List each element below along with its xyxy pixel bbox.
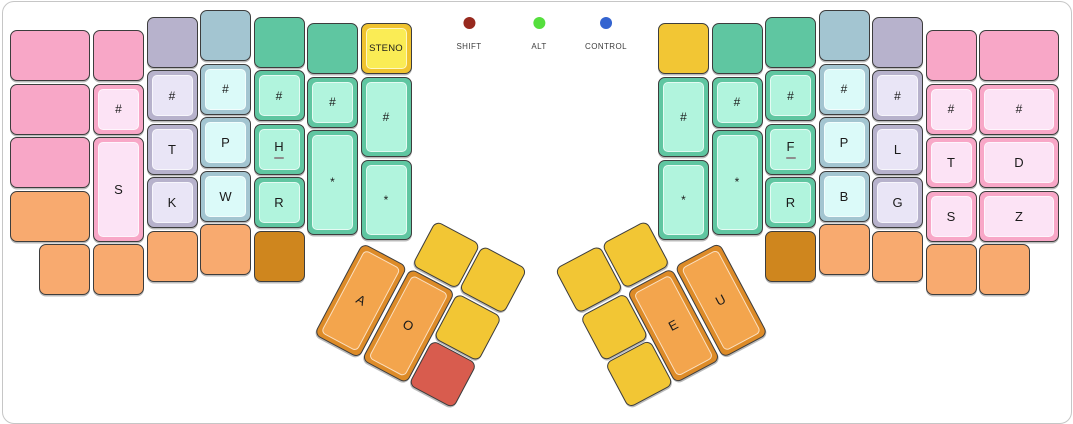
- key-l1-row3[interactable]: [10, 137, 90, 188]
- key-r3-hash[interactable]: #: [765, 70, 816, 121]
- keycap-inner: #: [717, 82, 758, 123]
- key-r4-bottom[interactable]: [819, 224, 870, 275]
- keyboard-board: AO EU #S#TK#PW#HR#*STENO#*#*#*#FR#PB#LG#…: [0, 0, 1073, 424]
- key-star-left-outer[interactable]: *: [307, 130, 358, 235]
- key-l1-row2[interactable]: [10, 84, 90, 135]
- key-label: G: [892, 196, 902, 209]
- key-label: H: [274, 140, 283, 153]
- key-steno-mode[interactable]: STENO: [361, 23, 412, 74]
- key-s-left[interactable]: S: [93, 137, 144, 242]
- key-l6-row1[interactable]: [307, 23, 358, 74]
- key-label: O: [401, 317, 416, 333]
- key-d-right[interactable]: D: [979, 137, 1059, 188]
- keycap-inner: Z: [984, 196, 1054, 237]
- key-label: R: [274, 196, 283, 209]
- key-z-right[interactable]: Z: [979, 191, 1059, 242]
- key-b-right[interactable]: B: [819, 171, 870, 222]
- key-h-left[interactable]: H: [254, 124, 305, 175]
- key-l5-hash[interactable]: #: [254, 70, 305, 121]
- alt-indicator: ALT: [531, 17, 546, 51]
- keycap-inner: P: [824, 122, 865, 163]
- keycap-inner: S: [98, 142, 139, 237]
- key-label: S: [947, 210, 956, 223]
- control-indicator-dot: [600, 17, 612, 29]
- key-l6-hash[interactable]: #: [307, 77, 358, 128]
- key-label: *: [735, 176, 740, 188]
- key-label: #: [115, 103, 122, 115]
- key-r2-row1[interactable]: [712, 23, 763, 74]
- control-indicator-label: CONTROL: [585, 42, 627, 51]
- key-l3-hash[interactable]: #: [147, 70, 198, 121]
- key-label: #: [734, 96, 741, 108]
- key-label: #: [222, 83, 229, 95]
- key-l1-bottom[interactable]: [39, 244, 90, 295]
- hyphen-position-mark: [274, 157, 284, 159]
- key-label: Z: [1015, 210, 1023, 223]
- key-l3-row1[interactable]: [147, 17, 198, 68]
- keycap-inner: STENO: [366, 28, 407, 69]
- key-l5-row1[interactable]: [254, 17, 305, 68]
- key-label: #: [169, 90, 176, 102]
- key-l-right[interactable]: L: [872, 124, 923, 175]
- key-r-right[interactable]: R: [765, 177, 816, 228]
- keycap-inner: R: [259, 182, 300, 223]
- key-l4-hash[interactable]: #: [200, 64, 251, 115]
- keycap-inner: T: [931, 142, 972, 183]
- key-r-left[interactable]: R: [254, 177, 305, 228]
- key-label: U: [713, 292, 727, 308]
- keycap-inner: #: [366, 82, 407, 152]
- keycap-inner: B: [824, 176, 865, 217]
- key-label: *: [681, 194, 686, 206]
- key-label: P: [840, 136, 849, 149]
- key-label: *: [384, 194, 389, 206]
- keycap-inner: #: [984, 89, 1054, 130]
- key-l1-row4[interactable]: [10, 191, 90, 242]
- key-label: #: [680, 111, 687, 123]
- key-r7-bottom[interactable]: [979, 244, 1030, 295]
- keycap-inner: P: [205, 122, 246, 163]
- keycap-inner: T: [152, 129, 193, 170]
- key-label: R: [786, 196, 795, 209]
- key-l2-row1[interactable]: [93, 30, 144, 81]
- key-t-left[interactable]: T: [147, 124, 198, 175]
- keycap-inner: #: [98, 89, 139, 130]
- key-label: E: [666, 318, 680, 334]
- control-indicator: CONTROL: [585, 17, 627, 51]
- key-r1-hash[interactable]: #: [658, 77, 709, 157]
- key-label: #: [276, 90, 283, 102]
- key-r2-hash[interactable]: #: [712, 77, 763, 128]
- key-r5-hash[interactable]: #: [872, 70, 923, 121]
- key-l2-bottom[interactable]: [93, 244, 144, 295]
- key-label: P: [221, 136, 230, 149]
- key-label: #: [948, 103, 955, 115]
- key-r3-row1[interactable]: [765, 17, 816, 68]
- key-r5-bottom[interactable]: [872, 231, 923, 282]
- key-r5-row1[interactable]: [872, 17, 923, 68]
- key-p-left[interactable]: P: [200, 117, 251, 168]
- keycap-inner: *: [312, 135, 353, 230]
- alt-indicator-dot: [533, 17, 545, 29]
- key-label: #: [841, 83, 848, 95]
- key-label: T: [947, 156, 955, 169]
- keycap-inner: #: [312, 82, 353, 123]
- keycap-inner: #: [824, 69, 865, 110]
- key-s-right[interactable]: S: [926, 191, 977, 242]
- keycap-inner: L: [877, 129, 918, 170]
- keycap-inner: D: [984, 142, 1054, 183]
- key-l7-hash[interactable]: #: [361, 77, 412, 157]
- keycap-inner: H: [259, 129, 300, 170]
- key-label: #: [894, 90, 901, 102]
- key-l2-hash[interactable]: #: [93, 84, 144, 135]
- key-l1-row1[interactable]: [10, 30, 90, 81]
- key-label: K: [168, 196, 177, 209]
- key-label: D: [1014, 156, 1023, 169]
- keycap-inner: G: [877, 182, 918, 223]
- key-l3-bottom[interactable]: [147, 231, 198, 282]
- key-p-right[interactable]: P: [819, 117, 870, 168]
- keycap-inner: F: [770, 129, 811, 170]
- keycap-inner: #: [205, 69, 246, 110]
- key-r6-row1[interactable]: [926, 30, 977, 81]
- shift-indicator-label: SHIFT: [456, 42, 481, 51]
- key-l4-row1[interactable]: [200, 10, 251, 61]
- alt-indicator-label: ALT: [531, 42, 546, 51]
- key-label: STENO: [369, 44, 403, 54]
- keycap-inner: #: [770, 75, 811, 116]
- keycap-inner: #: [259, 75, 300, 116]
- key-label: #: [1016, 103, 1023, 115]
- keycap-inner: #: [152, 75, 193, 116]
- keycap-inner: #: [931, 89, 972, 130]
- keycap-inner: S: [931, 196, 972, 237]
- key-t-right[interactable]: T: [926, 137, 977, 188]
- key-r4-hash[interactable]: #: [819, 64, 870, 115]
- hyphen-position-mark: [786, 157, 796, 159]
- key-r3-bottom[interactable]: [765, 231, 816, 282]
- key-star-left-inner[interactable]: *: [361, 160, 412, 240]
- keycap-inner: R: [770, 182, 811, 223]
- key-r6-bottom[interactable]: [926, 244, 977, 295]
- keycap-inner: W: [205, 176, 246, 217]
- keycap-inner: #: [663, 82, 704, 152]
- key-g-right[interactable]: G: [872, 177, 923, 228]
- shift-indicator: SHIFT: [456, 17, 481, 51]
- keycap-inner: *: [663, 165, 704, 235]
- key-f-right[interactable]: F: [765, 124, 816, 175]
- key-star-right-outer[interactable]: *: [712, 130, 763, 235]
- key-l4-bottom[interactable]: [200, 224, 251, 275]
- shift-indicator-dot: [463, 17, 475, 29]
- key-label: F: [787, 140, 795, 153]
- key-label: #: [329, 96, 336, 108]
- keycap-inner: K: [152, 182, 193, 223]
- key-label: #: [787, 90, 794, 102]
- key-r4-row1[interactable]: [819, 10, 870, 61]
- key-label: A: [354, 293, 368, 309]
- key-k-left[interactable]: K: [147, 177, 198, 228]
- key-r6-hash[interactable]: #: [926, 84, 977, 135]
- key-r7-row1[interactable]: [979, 30, 1059, 81]
- key-label: W: [219, 190, 231, 203]
- key-star-right-inner[interactable]: *: [658, 160, 709, 240]
- key-label: B: [840, 190, 849, 203]
- keycap-inner: #: [877, 75, 918, 116]
- keycap-inner: *: [366, 165, 407, 235]
- key-w-left[interactable]: W: [200, 171, 251, 222]
- key-r1-row1[interactable]: [658, 23, 709, 74]
- key-l5-bottom[interactable]: [254, 231, 305, 282]
- key-label: S: [114, 183, 123, 196]
- key-label: #: [383, 111, 390, 123]
- key-label: T: [168, 143, 176, 156]
- key-label: L: [894, 143, 901, 156]
- keycap-inner: *: [717, 135, 758, 230]
- key-label: *: [330, 176, 335, 188]
- key-r7-hash[interactable]: #: [979, 84, 1059, 135]
